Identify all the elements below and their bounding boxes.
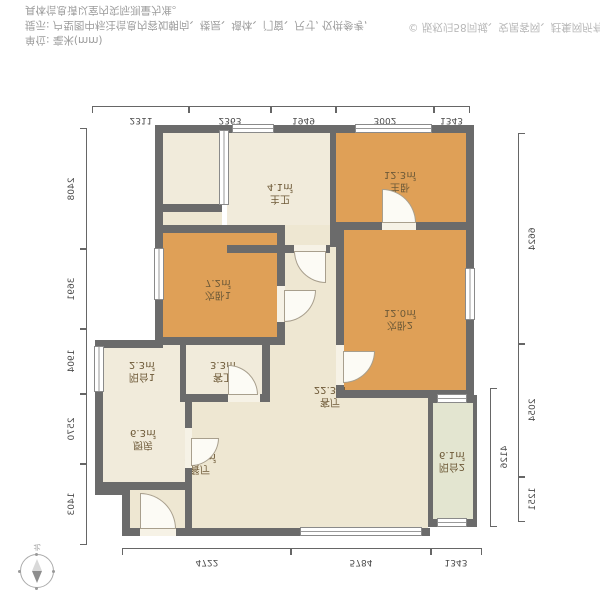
dim-left-1: 1403 <box>80 463 87 545</box>
room-name: 主卫 <box>248 192 312 204</box>
floorplan-image: 主卧 12.3㎡ 主卫 4.1㎡ 次卧1 7.2㎡ 次卧2 12.0㎡ 客厅 2… <box>0 0 600 600</box>
wall-east <box>466 125 474 395</box>
dim-value: 4126 <box>500 446 510 469</box>
compass-tick-w <box>18 570 21 573</box>
copyright-watermark: © 版权归58同城、安居客网、赶集网所有 <box>408 20 600 35</box>
dim-value: 2311 <box>93 115 189 125</box>
wall-closet-top <box>155 204 222 212</box>
compass-needle-south <box>32 559 42 571</box>
flipped-floorplan-stage: 主卧 12.3㎡ 主卫 4.1㎡ 次卧1 7.2㎡ 次卧2 12.0㎡ 客厅 2… <box>0 0 600 600</box>
dim-right-inner: 4126 <box>490 388 497 527</box>
wall-balcony2-left <box>428 395 433 527</box>
dim-bottom-4: 3002 <box>335 106 435 113</box>
label-bedroom2: 次卧1 7.2㎡ <box>186 276 250 300</box>
room-name: 次卧1 <box>186 288 250 300</box>
dim-top-1: 4722 <box>122 548 292 555</box>
dim-value: 1403 <box>67 493 77 516</box>
window-balcony1-west <box>94 346 104 392</box>
room-area: 6.3㎡ <box>113 426 173 438</box>
window-masterbath-south <box>232 124 274 133</box>
dim-bottom-5: 1343 <box>433 106 470 113</box>
dim-right-3: 6624 <box>518 133 525 345</box>
compass-icon: 北 <box>16 550 58 592</box>
label-master-bedroom: 主卧 12.3㎡ <box>360 168 440 192</box>
dim-value: 1343 <box>434 115 469 125</box>
dim-bottom-3: 1949 <box>270 106 337 113</box>
dim-right-2: 2054 <box>518 343 525 478</box>
dim-value: 5784 <box>291 557 431 567</box>
wall-bedroom2-bottom <box>155 225 285 233</box>
dim-value: 3691 <box>67 278 77 301</box>
tip-note-line2: 具体信息请以室内实际测量为准。 <box>25 3 183 18</box>
label-bedroom3: 次卧2 12.0㎡ <box>368 306 432 330</box>
window-masterbed-south <box>355 124 432 133</box>
dim-value: 2570 <box>67 418 77 441</box>
dim-value: 2408 <box>67 178 77 201</box>
wall-west-mid <box>95 340 163 348</box>
wall-kitchen-top <box>95 482 190 490</box>
room-area: 3.3㎡ <box>194 358 252 370</box>
room-area: 2.3㎡ <box>112 358 172 370</box>
room-name: 主卧 <box>360 180 440 192</box>
window-balcony2-inner <box>437 394 467 403</box>
dim-value: 1251 <box>528 488 538 511</box>
wall-step-v <box>122 487 130 536</box>
wall-west-upper <box>155 125 163 345</box>
room-closet <box>158 130 222 205</box>
room-name: 阳台1 <box>112 370 172 382</box>
dim-top-3: 1343 <box>430 548 482 555</box>
dim-top-2: 5784 <box>290 548 432 555</box>
door-gap-entry <box>140 528 176 536</box>
compass-north-label: 北 <box>16 542 58 552</box>
label-master-bath: 主卫 4.1㎡ <box>248 180 312 204</box>
compass-tick-n <box>35 587 38 590</box>
window-bedroom2-west <box>154 248 164 300</box>
window-balcony2-outer <box>437 518 467 527</box>
dim-left-2: 2570 <box>80 393 87 465</box>
window-living-north <box>300 527 422 536</box>
room-name: 厨房 <box>113 438 173 450</box>
dim-value: 2054 <box>528 399 538 422</box>
room-name: 次卧2 <box>368 318 432 330</box>
door-gap-masterbed <box>382 222 416 230</box>
dim-value: 1343 <box>431 557 481 567</box>
wall-guestbath-right <box>262 340 270 397</box>
dim-right-1: 1251 <box>518 476 525 522</box>
unit-note: 单位: 毫米(mm) <box>25 33 103 48</box>
room-area: 4.1㎡ <box>248 180 312 192</box>
wall-guestbath-divider <box>180 345 186 397</box>
label-kitchen: 厨房 6.3㎡ <box>113 426 173 450</box>
dim-bottom-1: 2311 <box>92 106 190 113</box>
room-area: 7.2㎡ <box>186 276 250 288</box>
room-area: 12.0㎡ <box>368 306 432 318</box>
wall-balcony2-right <box>473 395 477 527</box>
dim-bottom-2: 2363 <box>188 106 272 113</box>
dim-value: 6624 <box>528 228 538 251</box>
dim-value: 4722 <box>123 557 291 567</box>
dim-left-5: 2408 <box>80 128 87 250</box>
dim-left-4: 3691 <box>80 248 87 330</box>
compass-tick-e <box>52 570 55 573</box>
label-balcony1: 阳台1 2.3㎡ <box>112 358 172 382</box>
tip-note-line1: 提示: 户型图中标注信息内容如朝向、楼层、墙体、门窗、尺寸, 仅供参考, <box>25 18 367 33</box>
window-bedroom3-east <box>465 268 475 320</box>
room-area: 12.3㎡ <box>360 168 440 180</box>
door-gap-guestbath <box>228 394 260 402</box>
compass-needle-north <box>32 571 42 583</box>
compass-tick-s <box>35 553 38 556</box>
dim-value: 1949 <box>271 115 336 125</box>
window-closet-divider <box>219 130 229 205</box>
dim-left-3: 1904 <box>80 328 87 395</box>
dim-value: 1904 <box>67 350 77 373</box>
